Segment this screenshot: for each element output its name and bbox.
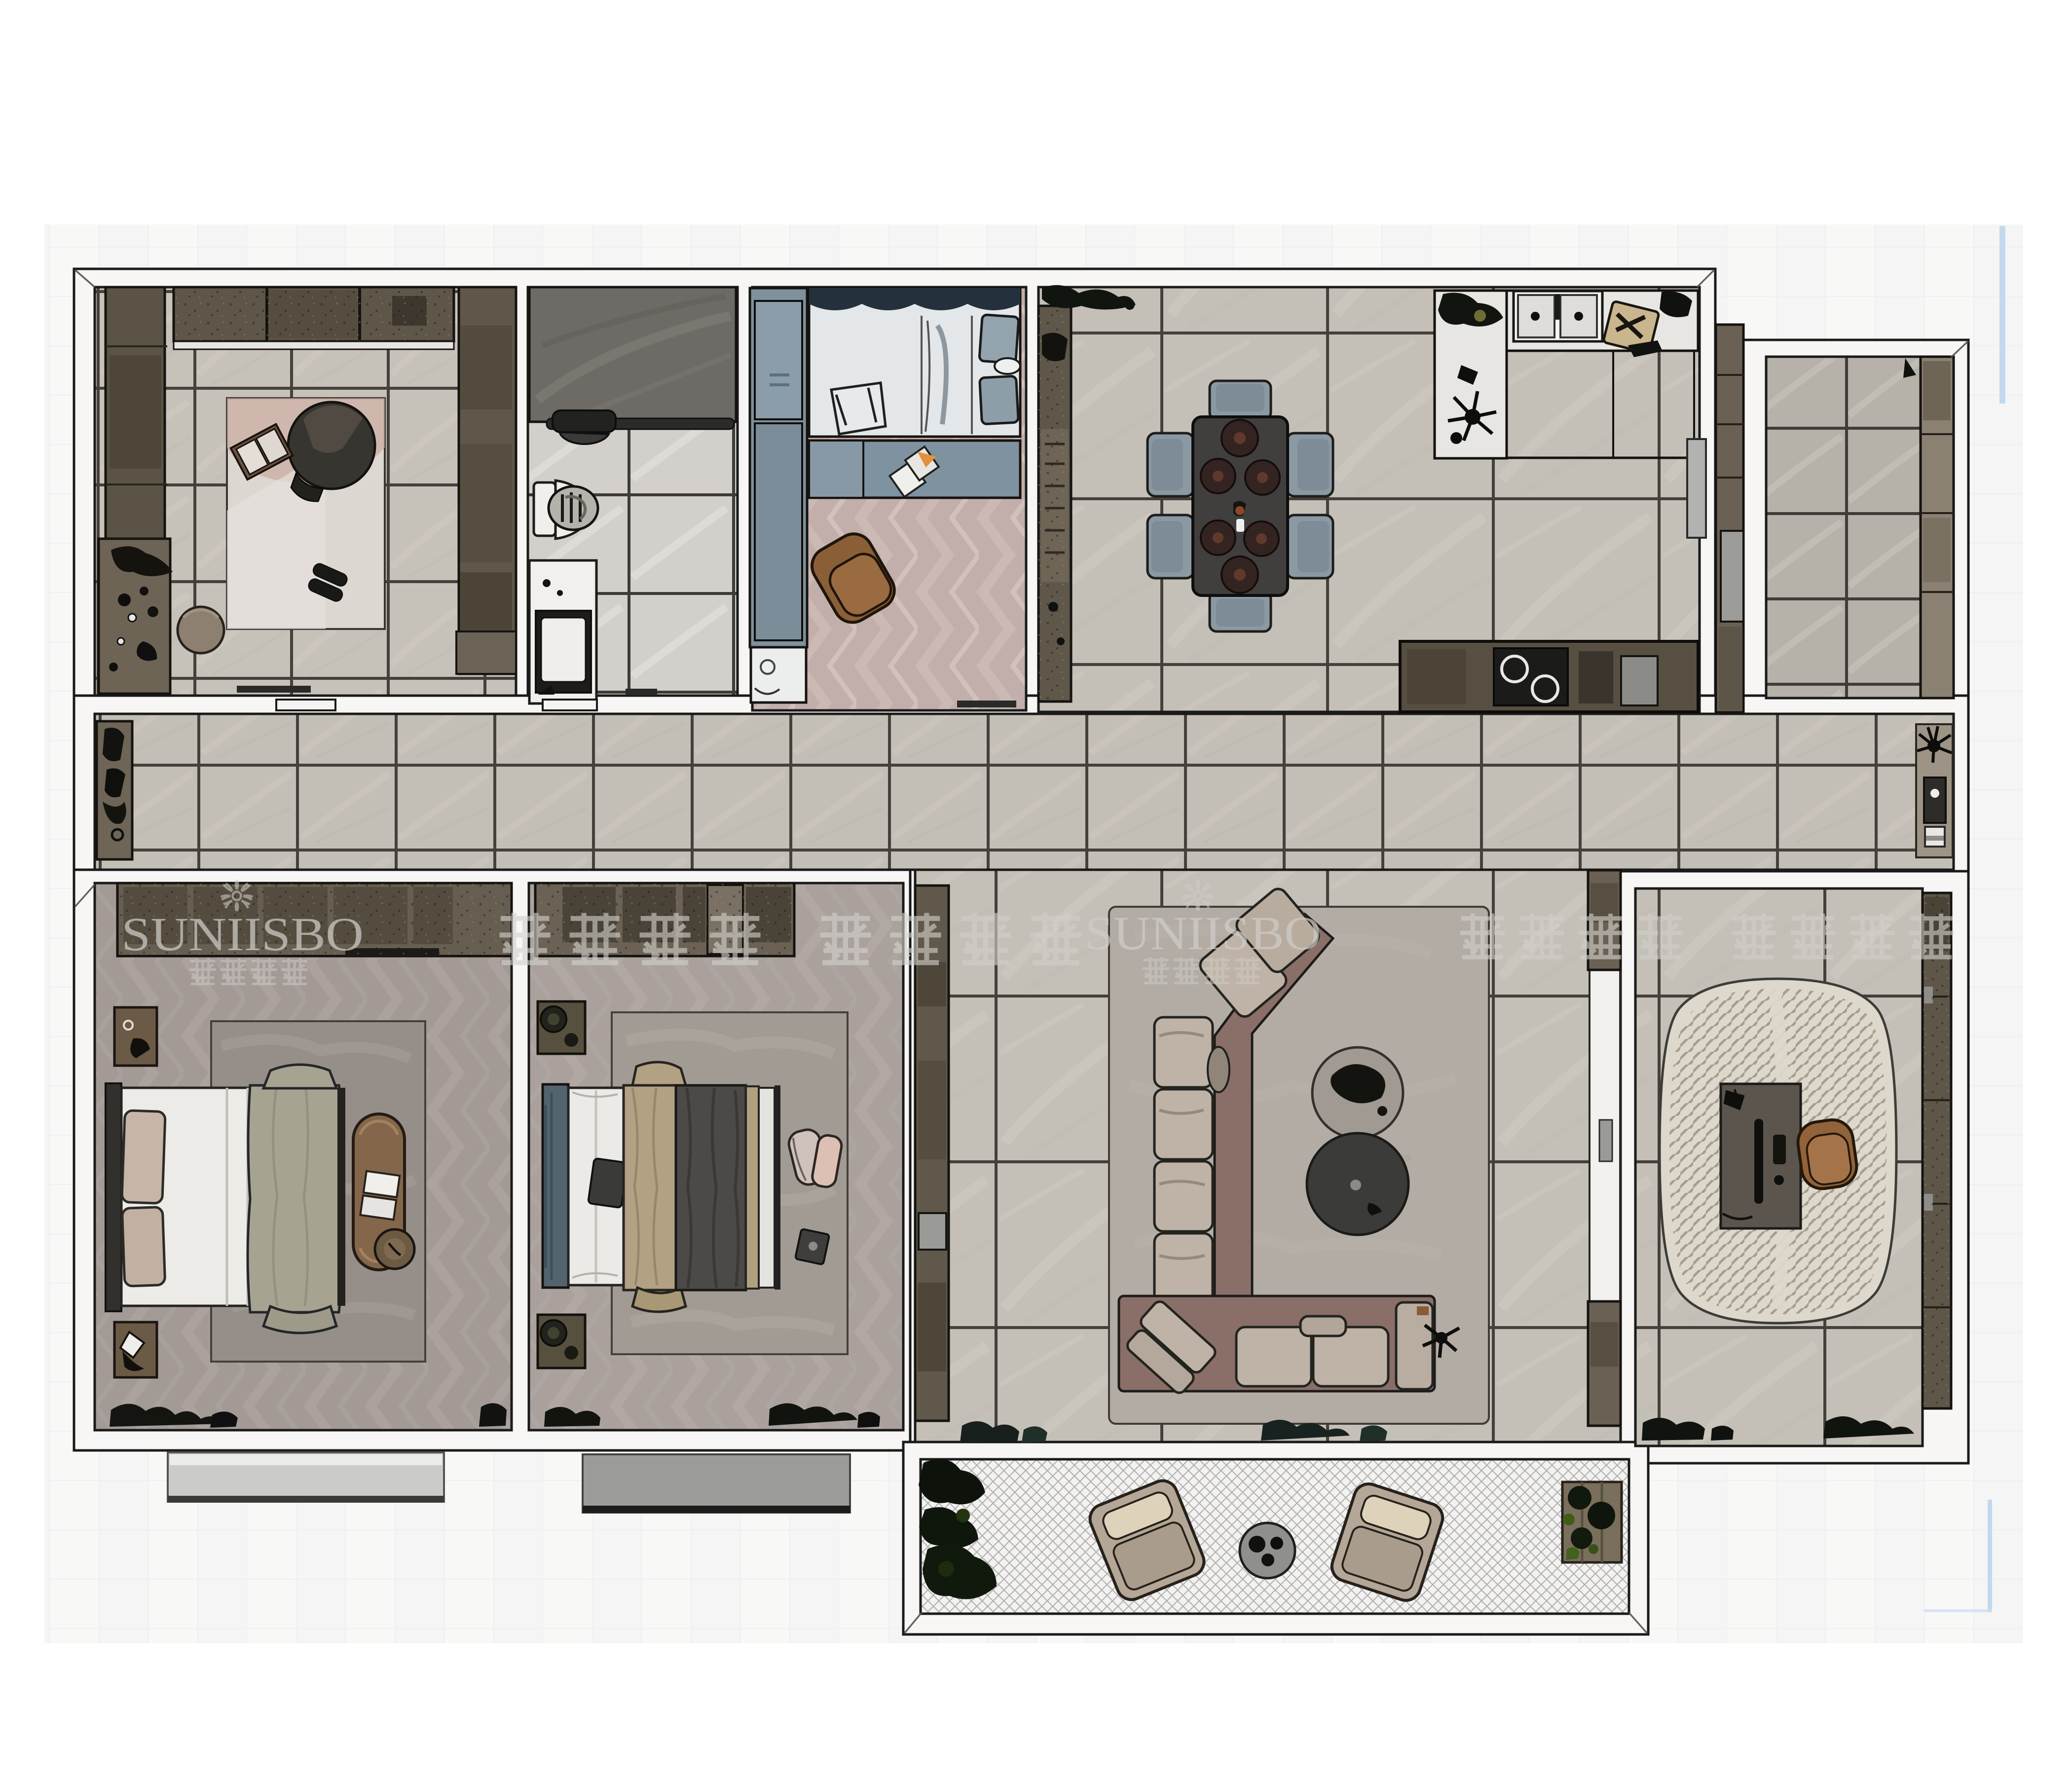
svg-text:SUNIISBO: SUNIISBO [121, 908, 364, 961]
svg-text:SUNIISBO: SUNIISBO [1085, 907, 1321, 960]
